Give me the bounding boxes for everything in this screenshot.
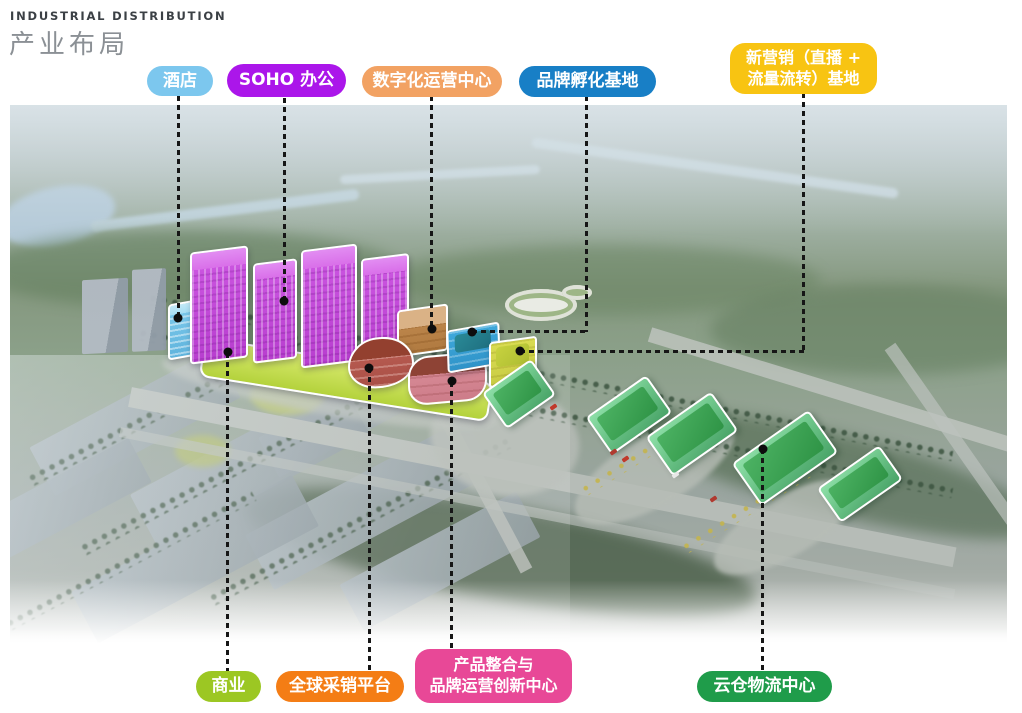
leader-dot-new-marketing [516,347,525,356]
slide: INDUSTRIAL DISTRIBUTION 产业布局 [0,0,1022,713]
leader-line-hotel [177,96,180,317]
existing-tower [82,278,128,354]
building-soho-tower [301,244,357,369]
river [340,165,540,184]
leader-dot-hotel [174,314,183,323]
leader-line-brand-incubation [585,96,588,332]
page-title-en: INDUSTRIAL DISTRIBUTION [10,9,226,23]
leader-dot-digital [428,325,437,334]
page-title: 产业布局 [9,24,129,61]
leader-line-digital [430,96,433,328]
leader-dot-commerce [224,348,233,357]
label-hotel: 酒店 [147,66,213,96]
leader-dot-soho [280,297,289,306]
label-commerce: 商业 [196,671,261,702]
label-cloud-warehouse-logistics-center: 云仓物流中心 [697,671,832,702]
leader-line-new-marketing-h [520,350,804,353]
label-new-marketing-base: 新营销（直播 + 流量流转）基地 [730,43,877,94]
existing-tower [132,268,166,352]
label-digital-operation-center: 数字化运营中心 [362,66,502,97]
leader-dot-cloud-logistics [759,445,768,454]
leader-dot-global-procurement [365,364,374,373]
label-brand-incubation-base: 品牌孵化基地 [519,66,656,97]
building-soho-tower [190,245,248,364]
river [90,189,359,233]
label-global-procurement-platform: 全球采销平台 [276,671,404,702]
label-soho-office: SOHO 办公 [227,64,346,97]
leader-line-brand-incubation-h [472,330,587,333]
leader-line-cloud-logistics [761,449,764,672]
leader-line-commerce [226,353,229,672]
leader-line-new-marketing [802,93,805,352]
label-product-integration-center: 产品整合与 品牌运营创新中心 [415,649,572,703]
aerial-rendering [10,105,1007,645]
leader-dot-product-integration [448,377,457,386]
building-soho-tower [253,258,297,363]
leader-line-soho [283,98,286,300]
leader-line-global-procurement [368,368,371,672]
leader-line-product-integration [450,382,453,650]
leader-dot-brand-incubation [468,328,477,337]
